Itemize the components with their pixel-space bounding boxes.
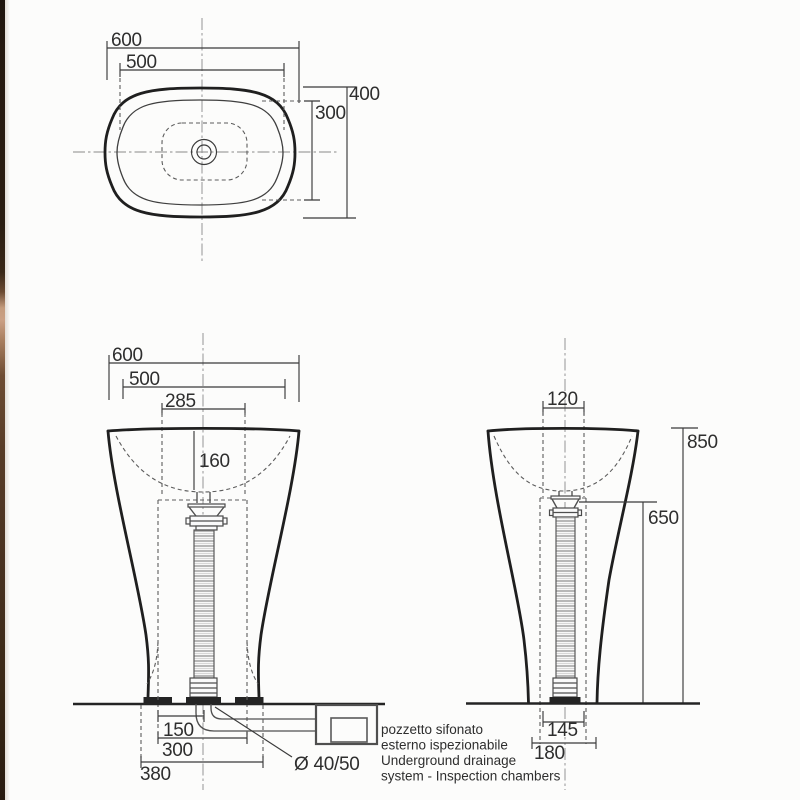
diameter-leader-line — [215, 707, 292, 757]
note-line-3: Underground drainage — [381, 753, 516, 768]
side-dim-850-label: 850 — [687, 432, 718, 453]
front-dim-diameter-label: Ø 40/50 — [294, 754, 360, 775]
side-dim-180: 180 — [532, 737, 596, 764]
front-dim-500-label: 500 — [129, 369, 160, 390]
side-view: 120 — [466, 338, 718, 790]
front-dim-500: 500 — [123, 369, 285, 399]
pedestal-front-edge-side — [488, 431, 529, 703]
pedestal-top-edge-side — [488, 428, 638, 431]
front-view: 600 500 285 160 — [73, 333, 385, 790]
flexible-drain-pipe-side — [556, 517, 575, 678]
top-dim-400-label: 400 — [349, 84, 380, 105]
inspection-chamber-inner — [331, 718, 367, 742]
bowl-hidden-arc-side — [494, 436, 632, 491]
drain-trap-side — [550, 491, 582, 704]
note-line-1: pozzetto sifonato — [381, 722, 483, 737]
washbasin-dimension-drawing: 600 500 400 300 — [0, 0, 800, 800]
front-dim-160: 160 — [194, 431, 230, 490]
top-dim-500-label: 500 — [126, 52, 157, 73]
front-dim-285-label: 285 — [165, 391, 196, 412]
top-dim-300-label: 300 — [315, 103, 346, 124]
pedestal-top-edge-front — [108, 428, 299, 431]
side-dim-120: 120 — [543, 389, 584, 497]
note-line-4: system - Inspection chambers — [381, 769, 561, 784]
front-dim-300-label: 300 — [162, 740, 193, 761]
technical-drawing-canvas: 600 500 400 300 — [0, 0, 800, 800]
drain-trap-front — [186, 492, 227, 704]
side-dim-180-label: 180 — [534, 743, 565, 764]
pedestal-right-foot — [235, 697, 264, 704]
front-dim-160-label: 160 — [199, 451, 230, 472]
side-dim-120-label: 120 — [547, 389, 578, 410]
front-dim-380-label: 380 — [140, 764, 171, 785]
front-dim-600-label: 600 — [112, 345, 143, 366]
basin-outer-rim — [105, 88, 295, 217]
inspection-chamber-box — [316, 705, 377, 744]
flexible-drain-pipe-front — [194, 530, 214, 678]
underfloor-pipe-outer — [196, 704, 316, 731]
top-dim-600-label: 600 — [111, 30, 142, 51]
pedestal-right-edge-front — [258, 431, 299, 697]
front-dim-150: 150 — [158, 710, 204, 741]
front-dim-285: 285 — [162, 391, 245, 497]
side-dim-145: 145 — [543, 711, 584, 741]
pedestal-back-edge-side — [597, 431, 638, 703]
basin-inner-rim — [117, 100, 283, 205]
side-dim-650-label: 650 — [648, 508, 679, 529]
side-dim-650: 650 — [579, 502, 679, 703]
basin-bottom-hidden-edge — [162, 123, 247, 180]
top-dim-300: 300 — [262, 101, 346, 200]
note-line-2: esterno ispezionabile — [381, 738, 508, 753]
side-dim-145-label: 145 — [547, 720, 578, 741]
side-dim-850: 850 — [671, 428, 718, 703]
top-view: 600 500 400 300 — [73, 18, 380, 262]
